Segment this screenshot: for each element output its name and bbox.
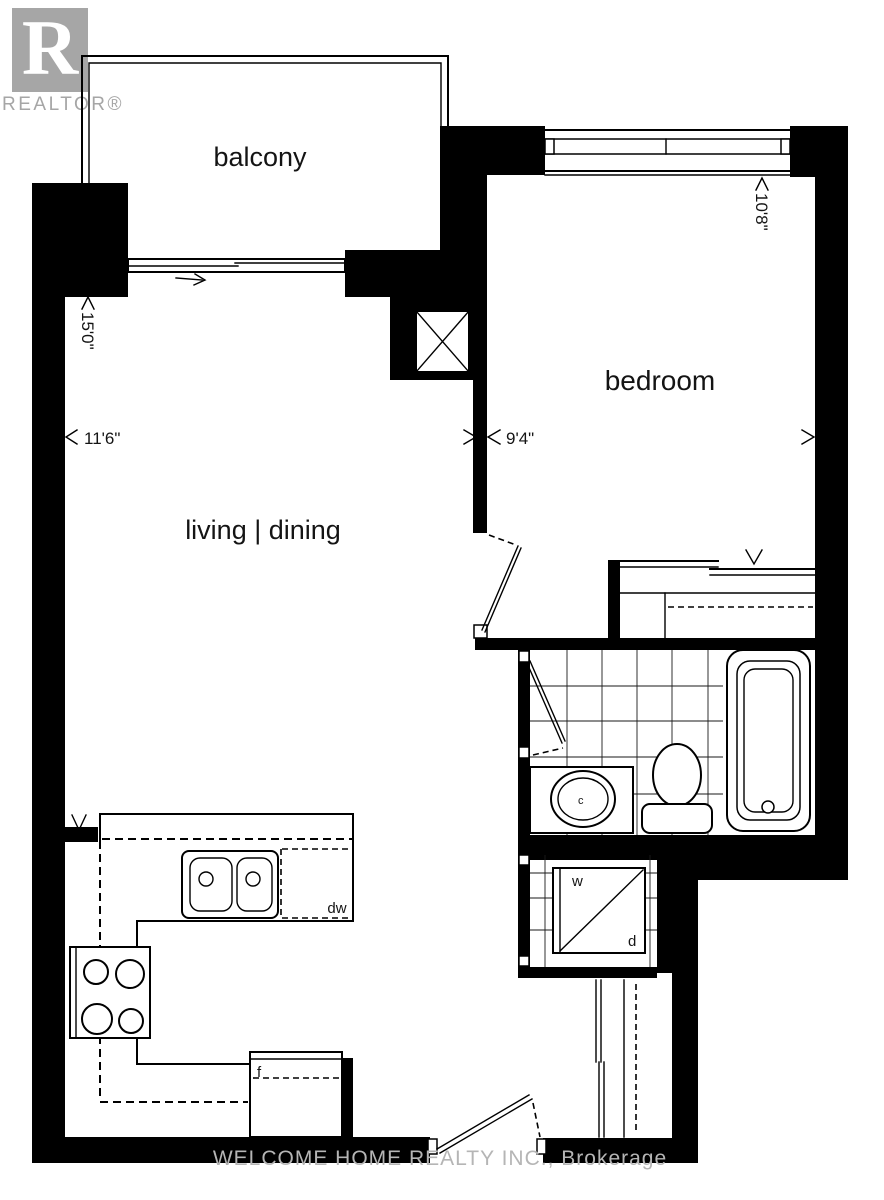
toilet-tank xyxy=(642,804,712,833)
wall-balcony-right-block xyxy=(345,250,440,297)
entry-door xyxy=(428,1095,546,1154)
dryer-label: d xyxy=(628,933,636,950)
bedroom-window xyxy=(545,130,790,175)
dim-arrow-up-living xyxy=(82,297,94,309)
bathroom-door-hinge-bottom xyxy=(519,747,529,758)
watermark: WELCOME HOME REALTY INC., Brokerage xyxy=(213,1147,667,1170)
wall-left xyxy=(32,183,65,1163)
bedroom-label: bedroom xyxy=(605,365,716,396)
foyer-closet xyxy=(596,980,636,1137)
living-dining-label: living | dining xyxy=(185,515,341,545)
bathtub xyxy=(727,650,810,831)
washer-label: w xyxy=(571,873,583,890)
fridge: f xyxy=(250,1052,342,1137)
walls xyxy=(32,126,848,1163)
toilet-bowl xyxy=(653,744,701,806)
sink-drain-mark: c xyxy=(578,795,584,807)
washer-dryer: w d xyxy=(553,868,645,953)
wall-foyer-right-upper xyxy=(657,880,698,973)
wall-kitchen-stub xyxy=(65,827,98,842)
kitchen-area: dw f xyxy=(70,814,353,1137)
wall-living-top xyxy=(32,270,128,297)
wall-closet-left xyxy=(608,560,620,643)
bedroom-area: bedroom xyxy=(474,365,815,638)
dishwasher-label: dw xyxy=(327,900,346,917)
dim-living-width: 11'6" xyxy=(84,429,120,448)
wall-living-bedroom-divider xyxy=(473,380,487,533)
fridge-body xyxy=(250,1052,342,1137)
laundry-jamb-bottom xyxy=(519,956,529,966)
bathroom-door-hinge-top xyxy=(519,651,529,662)
laundry-area: w d xyxy=(519,855,657,967)
wall-bathroom-left xyxy=(518,645,530,837)
realtor-logo: R REALTOR® xyxy=(2,4,124,115)
realtor-logo-letter: R xyxy=(22,4,80,91)
wall-kitchen-foyer-stub xyxy=(342,1058,353,1138)
realtor-logo-text: REALTOR® xyxy=(2,94,124,115)
bedroom-closet xyxy=(620,550,815,638)
balcony-label: balcony xyxy=(213,142,307,172)
foyer-area xyxy=(428,980,636,1154)
dim-bedroom-length: 10'8" xyxy=(752,193,771,231)
floor-plan-svg: R REALTOR® xyxy=(0,0,884,1200)
dim-arrow-left xyxy=(66,430,77,444)
bedroom-door xyxy=(474,535,521,638)
bathroom-area: c xyxy=(519,650,810,835)
wall-foyer-closet-right xyxy=(672,973,698,1138)
bathtub-drain xyxy=(762,801,774,813)
dim-bedroom-width: 9'4" xyxy=(506,429,534,448)
wall-right xyxy=(815,126,848,880)
stove xyxy=(70,947,150,1038)
wall-lower-right-band xyxy=(657,840,848,880)
shaft-column xyxy=(416,311,469,372)
closet-v-mark xyxy=(746,550,762,564)
balcony-sliding-door xyxy=(128,259,345,272)
dim-arrow-up-bedroom xyxy=(756,178,768,190)
laundry-jamb-top xyxy=(519,855,529,865)
dim-living-length: 15'0" xyxy=(78,312,97,350)
wall-window-left-jamb xyxy=(487,126,545,175)
vanity-sink: c xyxy=(530,767,633,833)
sliding-direction-arrow xyxy=(176,274,205,285)
floor-plan: R REALTOR® xyxy=(0,0,884,1200)
dim-arrow-divider-right xyxy=(488,430,500,444)
kitchen-sink xyxy=(182,851,278,918)
dim-arrow-right xyxy=(802,430,814,444)
dishwasher: dw xyxy=(281,849,351,918)
bathtub-rim xyxy=(737,661,800,820)
wall-laundry-bottom xyxy=(518,967,657,978)
